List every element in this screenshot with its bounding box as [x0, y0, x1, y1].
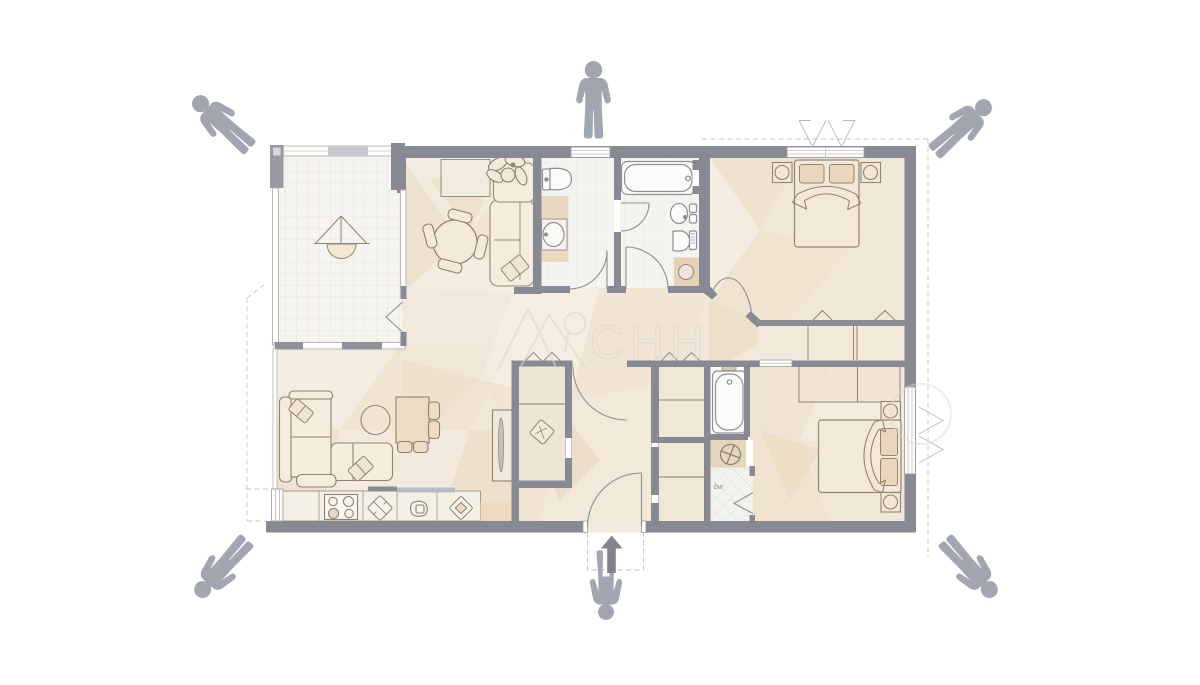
- svg-text:CHH: CHH: [590, 315, 710, 368]
- svg-text:bw: bw: [714, 484, 724, 491]
